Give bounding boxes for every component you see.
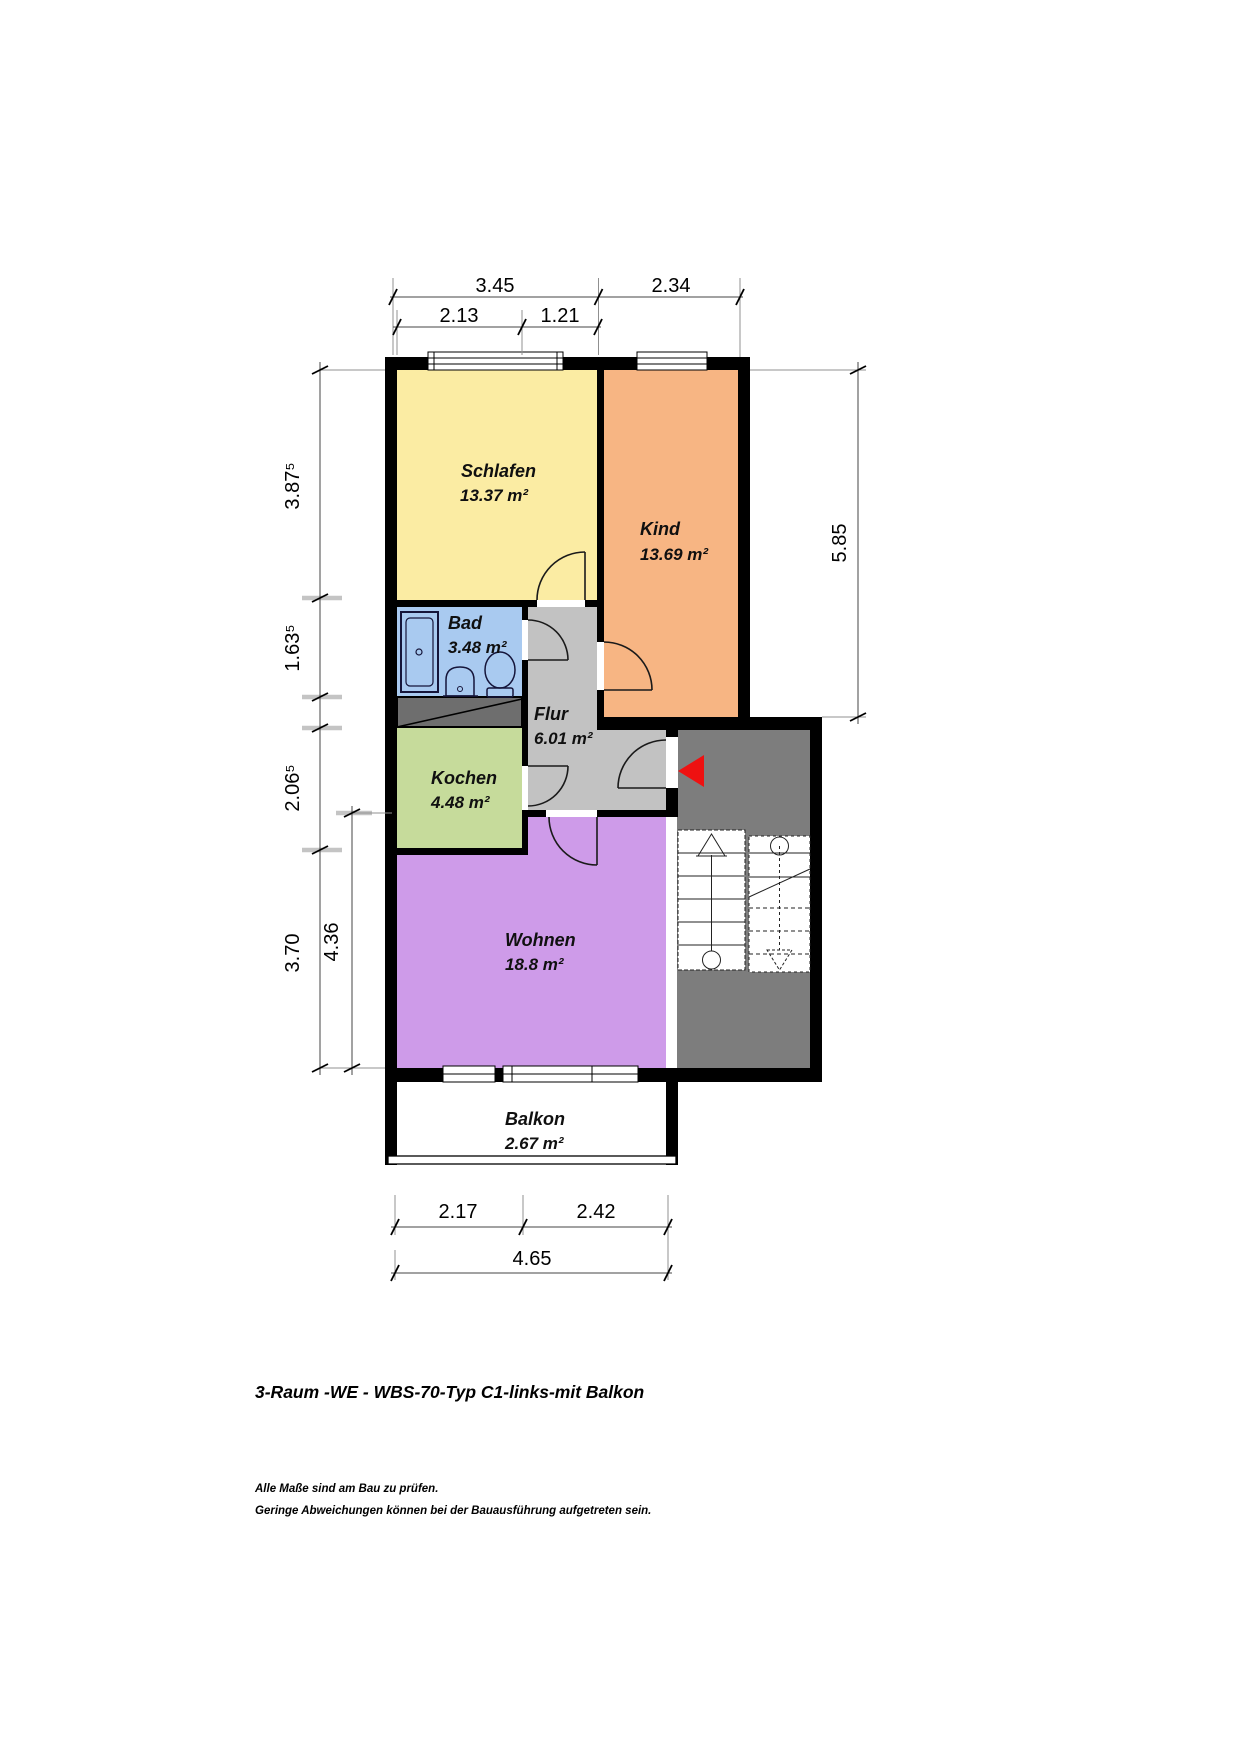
balcony-rail xyxy=(388,1156,676,1164)
wall-entrance-bottom xyxy=(666,788,678,810)
dim-bottom-465: 4.65 xyxy=(513,1248,552,1270)
wall-flur-kind-bottom xyxy=(597,690,604,717)
room-kind-label: Kind xyxy=(640,519,681,539)
wall-stairwell-right xyxy=(810,717,822,1082)
wall-entrance-top xyxy=(666,730,678,737)
staircase xyxy=(678,830,810,972)
wall-right-upper xyxy=(738,357,750,730)
wall-schlafen-flur-left xyxy=(397,600,537,607)
wall-bad-flur-top xyxy=(522,607,528,620)
room-wohnen-label: Wohnen xyxy=(505,930,576,950)
room-schlafen-fill xyxy=(397,370,597,600)
dim-bottom-242: 2.42 xyxy=(577,1201,616,1223)
room-wohnen-area: 18.8 m² xyxy=(505,955,565,974)
dim-left-436: 4.36 xyxy=(321,923,343,962)
wall-flur-wohnen-right xyxy=(597,810,678,817)
wall-schlafen-kind xyxy=(597,370,604,600)
window-schlafen-icon xyxy=(428,352,563,370)
wall-bad-flur-mid xyxy=(522,660,528,766)
dim-bottom-217: 2.17 xyxy=(439,1201,478,1223)
dim-left-3875: 3.87⁵ xyxy=(282,462,304,509)
room-bad-area: 3.48 m² xyxy=(448,638,508,657)
stairs-down-icon xyxy=(749,836,810,972)
wall-flur-wohnen-left xyxy=(522,810,546,817)
window-kind-icon xyxy=(637,352,707,370)
window-wohnen-icon xyxy=(443,1066,495,1082)
wall-balcony-right xyxy=(666,1082,678,1165)
wall-flur-kind-top xyxy=(597,600,604,642)
dim-left-2065: 2.06⁵ xyxy=(282,764,304,811)
room-balkon-label: Balkon xyxy=(505,1109,565,1129)
stairs-up-icon xyxy=(678,830,745,970)
wall-left xyxy=(385,357,397,1082)
room-flur-area: 6.01 m² xyxy=(534,729,594,748)
dim-left-1635: 1.63⁵ xyxy=(282,624,304,671)
room-kind-fill xyxy=(604,370,738,717)
room-schlafen-label: Schlafen xyxy=(461,461,536,481)
footer-note-line1: Alle Maße sind am Bau zu prüfen. xyxy=(254,1483,438,1495)
room-bad-label: Bad xyxy=(448,613,483,633)
dim-top-213: 2.13 xyxy=(440,305,479,327)
balcony-door-window-icon xyxy=(503,1066,638,1082)
floor-plan: Schlafen 13.37 m² Kind 13.69 m² Bad 3.48… xyxy=(0,0,1240,1754)
room-flur-label: Flur xyxy=(534,704,569,724)
entrance-door-gap xyxy=(666,737,678,788)
dim-left-370: 3.70 xyxy=(282,934,304,973)
footer-note-line2: Geringe Abweichungen können bei der Baua… xyxy=(255,1505,651,1517)
shaft-strip xyxy=(397,697,522,727)
room-kind-area: 13.69 m² xyxy=(640,545,709,564)
dim-right-585: 5.85 xyxy=(829,524,851,563)
wall-balcony-left xyxy=(385,1082,397,1165)
plan-title: 3-Raum -WE - WBS-70-Typ C1-links-mit Bal… xyxy=(255,1382,644,1402)
wall-kochen-bottom xyxy=(397,848,528,855)
dim-top-345: 3.45 xyxy=(476,275,515,297)
wall-kochen-wohnen xyxy=(522,817,528,848)
dim-top-121: 1.21 xyxy=(541,305,580,327)
room-kochen-label: Kochen xyxy=(431,768,497,788)
room-kochen-area: 4.48 m² xyxy=(430,793,491,812)
room-balkon-area: 2.67 m² xyxy=(504,1134,565,1153)
room-schlafen-area: 13.37 m² xyxy=(460,486,529,505)
wall-kind-bottom-band xyxy=(597,717,822,730)
dim-top-234: 2.34 xyxy=(652,275,691,297)
wall-schlafen-flur-right xyxy=(585,600,597,607)
